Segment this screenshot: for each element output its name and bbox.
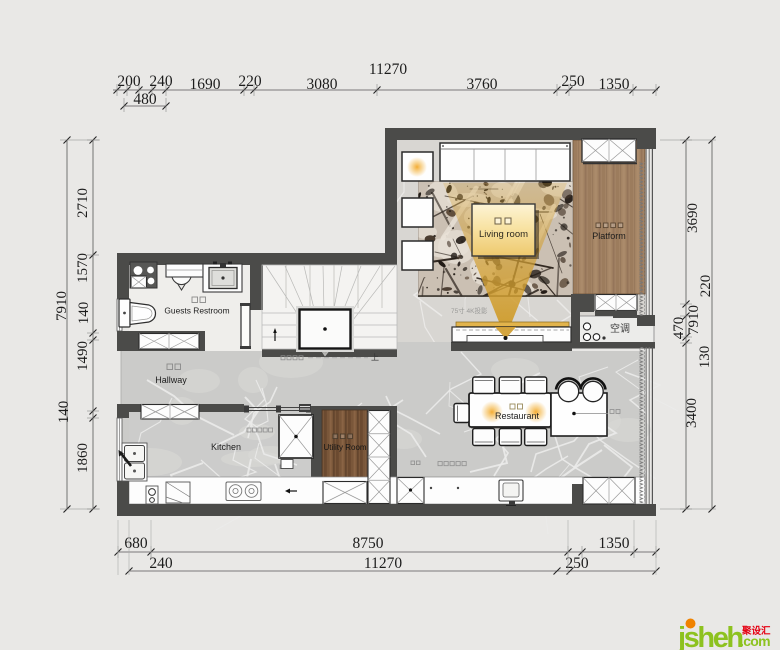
svg-text:Platform: Platform <box>592 231 626 241</box>
svg-text:Living room: Living room <box>479 229 528 240</box>
svg-text:130: 130 <box>697 346 713 369</box>
svg-text:Hallway: Hallway <box>155 375 187 385</box>
svg-text:680: 680 <box>124 535 148 552</box>
svg-text:空调: 空调 <box>610 322 630 335</box>
svg-text:480: 480 <box>133 91 157 108</box>
svg-text:200: 200 <box>117 73 141 90</box>
svg-text:7910: 7910 <box>686 305 702 335</box>
svg-text:1570: 1570 <box>75 253 91 283</box>
svg-text:250: 250 <box>565 555 589 572</box>
svg-text:上: 上 <box>371 353 379 362</box>
svg-text:Utility Room: Utility Room <box>323 443 366 452</box>
svg-text:3690: 3690 <box>685 203 701 233</box>
svg-text:1350: 1350 <box>599 535 630 552</box>
svg-text:Restaurant: Restaurant <box>495 411 540 421</box>
svg-text:1690: 1690 <box>190 76 221 93</box>
svg-text:240: 240 <box>149 73 173 90</box>
svg-text:Kitchen: Kitchen <box>211 442 241 452</box>
svg-text:8750: 8750 <box>353 535 384 552</box>
svg-text:1490: 1490 <box>75 341 91 371</box>
svg-text:1350: 1350 <box>599 76 630 93</box>
svg-text:75寸 4K投影: 75寸 4K投影 <box>451 306 488 315</box>
svg-text:1860: 1860 <box>75 443 91 473</box>
svg-text:470: 470 <box>671 317 687 340</box>
svg-text:3760: 3760 <box>467 76 498 93</box>
svg-text:140: 140 <box>56 401 72 424</box>
svg-text:220: 220 <box>238 73 262 90</box>
svg-text:聚设汇: 聚设汇 <box>741 625 771 637</box>
svg-text:Guests Restroom: Guests Restroom <box>164 306 229 316</box>
svg-text:3400: 3400 <box>684 398 700 428</box>
svg-text:240: 240 <box>149 555 173 572</box>
svg-text:11270: 11270 <box>364 555 402 572</box>
svg-text:250: 250 <box>561 73 585 90</box>
svg-text:3080: 3080 <box>307 76 338 93</box>
svg-text:2710: 2710 <box>75 188 91 218</box>
svg-text:7910: 7910 <box>54 291 70 321</box>
svg-text:220: 220 <box>698 275 714 298</box>
svg-text:140: 140 <box>76 302 92 325</box>
svg-text:11270: 11270 <box>369 61 407 78</box>
